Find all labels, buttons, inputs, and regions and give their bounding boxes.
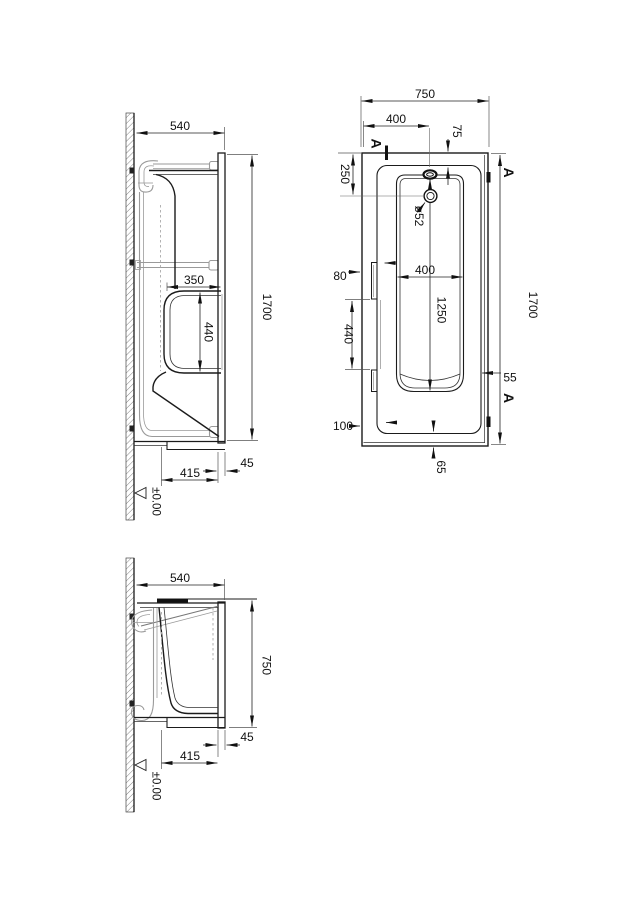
section-marker-a-top-left: A	[369, 138, 385, 148]
dim-label-100: 100	[333, 419, 353, 433]
overflow-hole	[424, 170, 437, 178]
level-label: ±0.00	[150, 487, 162, 516]
section-marker-a-top-right: A	[501, 167, 517, 177]
dim-label-45: 45	[240, 730, 254, 744]
dim-label-400-well: 400	[415, 263, 435, 277]
dim-label-350: 350	[184, 273, 204, 287]
page-background	[0, 0, 640, 906]
wall-hatch	[126, 113, 134, 520]
dim-label-415: 415	[180, 749, 200, 763]
dim-label-45: 45	[240, 456, 254, 470]
dim-label-415: 415	[180, 466, 200, 480]
dim-label-750: 750	[415, 87, 435, 101]
drain-hole	[424, 190, 437, 203]
dim-label-75: 75	[450, 124, 464, 138]
dim-label-540: 540	[170, 571, 190, 585]
level-label: ±0.00	[150, 772, 162, 801]
dim-label-55: 55	[503, 371, 517, 385]
dim-label-440-plan: 440	[342, 324, 356, 344]
drain-diameter-label: ø52	[412, 206, 426, 227]
apron-panel	[218, 153, 225, 443]
dim-label-80: 80	[333, 269, 347, 283]
dim-label-750: 750	[260, 655, 274, 675]
dim-label-1700: 1700	[260, 294, 274, 321]
dim-label-1700-plan: 1700	[526, 292, 540, 319]
wall-bracket	[130, 168, 135, 174]
dim-label-1250: 1250	[435, 297, 449, 324]
dim-label-540: 540	[170, 119, 190, 133]
dim-label-400-top: 400	[386, 112, 406, 126]
dim-label-65: 65	[434, 460, 448, 474]
dim-label-440: 440	[202, 322, 216, 342]
wall-bracket	[130, 701, 135, 707]
technical-drawing: 540 350 440 1700 45 415 ±0.00	[0, 0, 640, 906]
wall-hatch	[126, 558, 134, 812]
wall-bracket	[130, 426, 135, 432]
drawing-canvas: 540 350 440 1700 45 415 ±0.00	[0, 0, 640, 906]
wall-bracket	[130, 260, 135, 266]
apron-panel	[218, 602, 225, 728]
section-marker-a-bottom-right: A	[501, 393, 517, 403]
dim-label-250: 250	[338, 164, 352, 184]
